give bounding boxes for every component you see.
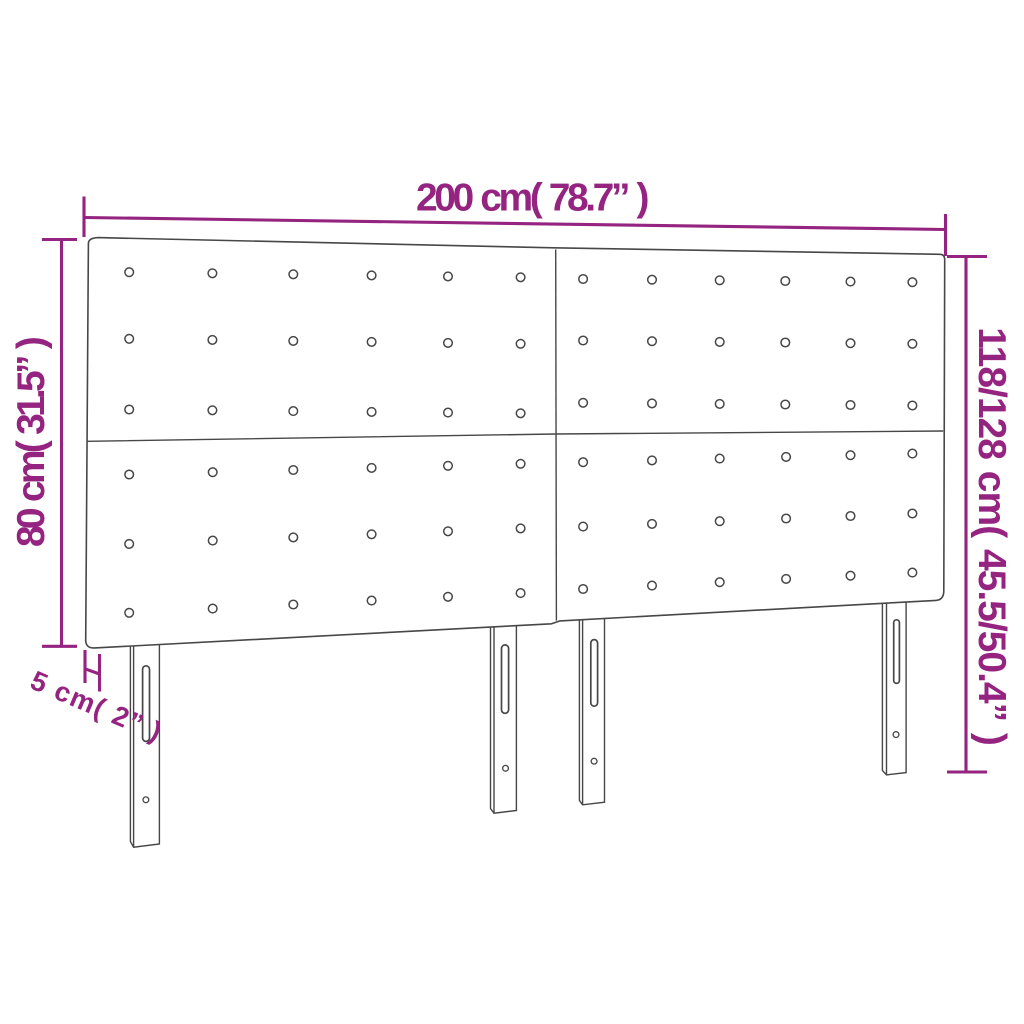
svg-text:80 cm( 31.5” ): 80 cm( 31.5” ) <box>10 337 53 547</box>
svg-text:200 cm( 78.7” ): 200 cm( 78.7” ) <box>416 177 648 220</box>
svg-text:118/128 cm( 45.5/50.4” ): 118/128 cm( 45.5/50.4” ) <box>970 327 1013 745</box>
